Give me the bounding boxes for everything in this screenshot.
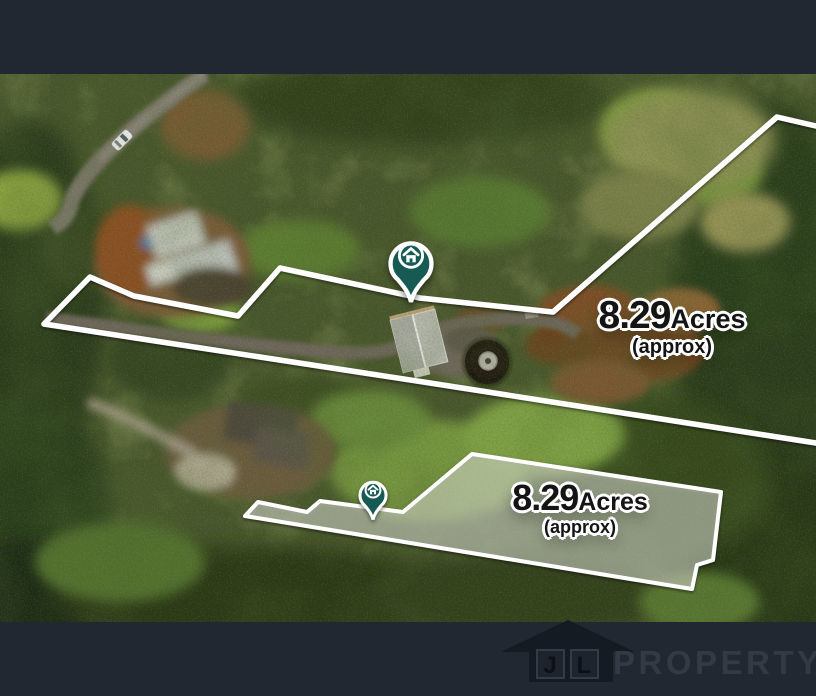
area-unit-upper: Acres bbox=[670, 304, 745, 334]
brand-name: PROPERTY bbox=[613, 644, 816, 681]
brand-initial-j: J bbox=[543, 652, 556, 679]
listing-photo-stage: J L PROPERTY 8.29Acres (approx) 8.29Acre… bbox=[0, 0, 816, 696]
area-unit-lower: Acres bbox=[578, 488, 648, 516]
area-label-lower: 8.29Acres (approx) bbox=[444, 480, 716, 536]
area-label-upper: 8.29Acres (approx) bbox=[536, 296, 808, 357]
letterbox-top bbox=[0, 0, 816, 74]
area-qualifier-upper: (approx) bbox=[536, 337, 808, 357]
brand-initial-l: L bbox=[577, 652, 592, 679]
area-qualifier-lower: (approx) bbox=[444, 518, 716, 536]
area-value-lower: 8.29 bbox=[512, 477, 578, 518]
area-value-upper: 8.29 bbox=[599, 294, 671, 337]
